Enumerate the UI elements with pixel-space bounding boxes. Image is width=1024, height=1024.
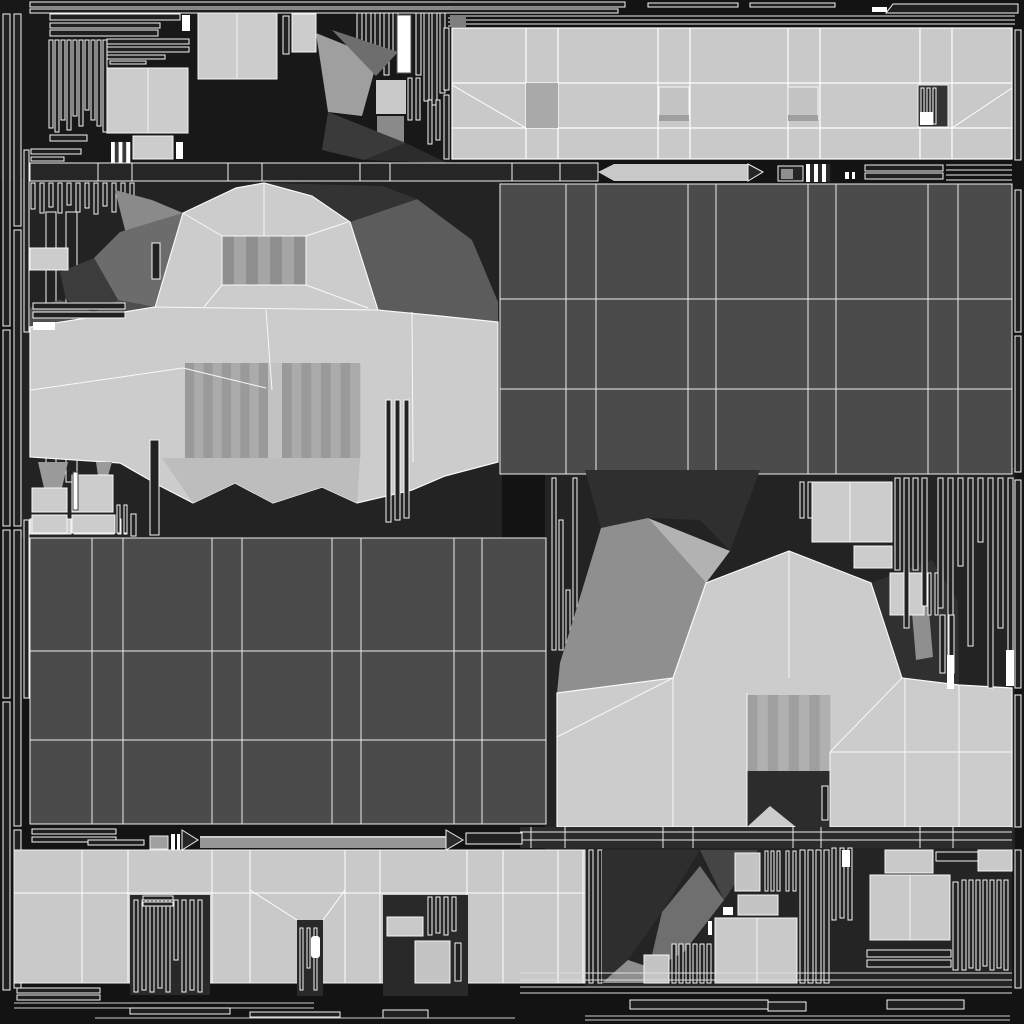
layer-mid-right-grid xyxy=(500,184,1012,474)
uv-atlas-canvas xyxy=(0,0,1024,1024)
layer-left-grid xyxy=(30,514,546,824)
uv-atlas-page: UV texture atlas wireframe sheet xyxy=(0,0,1024,1024)
layer-top-right-grid xyxy=(444,28,1012,159)
